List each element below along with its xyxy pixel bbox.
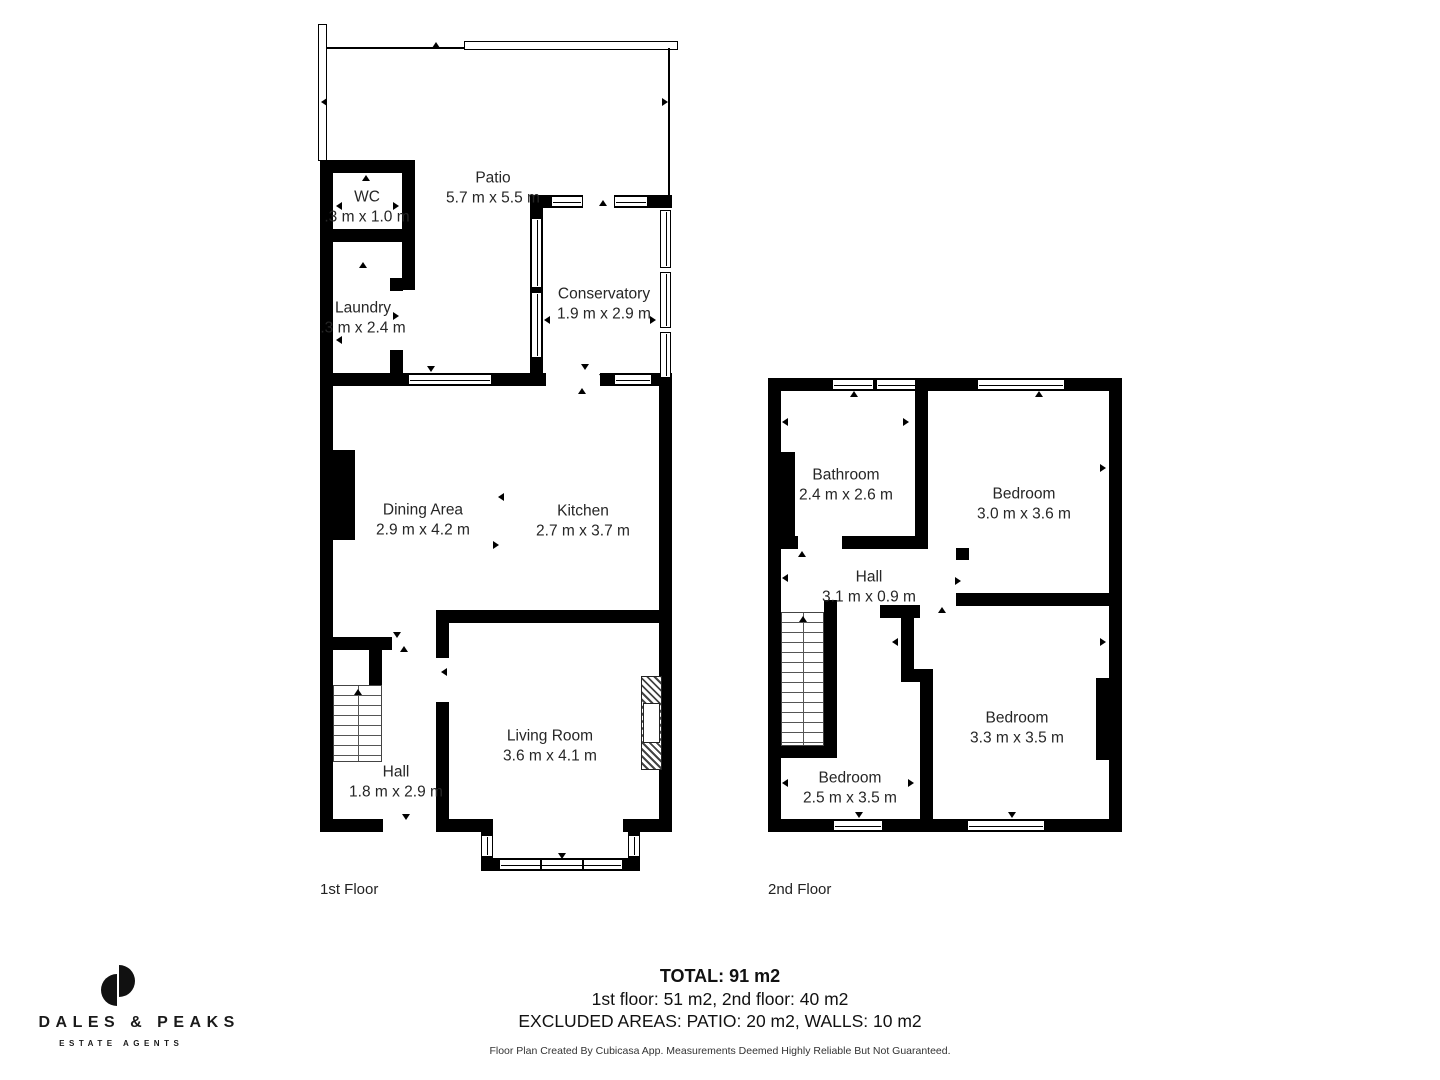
- wall: [768, 378, 1122, 391]
- direction-arrow: [1100, 464, 1106, 472]
- direction-arrow: [498, 493, 504, 501]
- wall: [824, 600, 837, 750]
- direction-arrow: [938, 607, 946, 613]
- room-name: Living Room: [503, 727, 597, 747]
- direction-arrow: [855, 812, 863, 818]
- stairs-center-line: [358, 686, 359, 761]
- room-name: Kitchen: [536, 502, 630, 522]
- wall: [915, 378, 928, 548]
- direction-arrow: [782, 574, 788, 582]
- wall: [768, 819, 1122, 832]
- wall: [369, 650, 382, 688]
- direction-arrow: [558, 853, 566, 859]
- room-name: Patio: [446, 169, 540, 189]
- room-name: Hall: [822, 568, 916, 588]
- direction-arrow: [798, 551, 806, 557]
- window-divider: [540, 859, 542, 870]
- direction-arrow: [659, 493, 665, 501]
- window: [614, 196, 648, 207]
- patio-boundary-line: [326, 47, 466, 49]
- direction-arrow: [782, 418, 788, 426]
- direction-arrow: [544, 316, 550, 324]
- room-dims: 5.7 m x 5.5 m: [446, 188, 540, 208]
- wall: [768, 378, 781, 832]
- stairs-second-floor: [781, 612, 824, 746]
- door-opening: [436, 658, 449, 702]
- room-dims: .3 m x 1.0 m: [324, 207, 409, 227]
- direction-arrow: [955, 577, 961, 585]
- room-dims: 1.8 m x 2.9 m: [349, 782, 443, 802]
- room-label-hall-first: Hall 1.8 m x 2.9 m: [349, 763, 443, 802]
- room-name: Bedroom: [803, 769, 897, 789]
- wall: [320, 160, 415, 173]
- room-label-laundry: Laundry .3 m x 2.4 m: [320, 299, 405, 338]
- window: [531, 292, 542, 358]
- direction-arrow: [1035, 391, 1043, 397]
- room-name: Bedroom: [977, 485, 1071, 505]
- direction-arrow: [892, 638, 898, 646]
- direction-arrow: [662, 98, 668, 106]
- wall: [956, 548, 969, 560]
- window: [481, 835, 493, 857]
- window: [832, 379, 874, 390]
- room-name: Bathroom: [799, 466, 893, 486]
- window: [499, 859, 623, 870]
- window: [833, 820, 883, 831]
- direction-arrow: [362, 234, 370, 240]
- direction-arrow: [578, 613, 586, 619]
- room-name: Hall: [349, 763, 443, 783]
- wall: [320, 637, 392, 650]
- logo-half-circle-right: [119, 965, 135, 997]
- stairs-up-arrow: [799, 616, 807, 622]
- direction-arrow: [493, 541, 499, 549]
- room-name: Conservatory: [557, 285, 651, 305]
- room-label-dining: Dining Area 2.9 m x 4.2 m: [376, 501, 470, 540]
- room-dims: 2.9 m x 4.2 m: [376, 520, 470, 540]
- direction-arrow: [359, 262, 367, 268]
- direction-arrow: [599, 200, 607, 206]
- wall: [436, 610, 672, 623]
- window: [531, 218, 542, 288]
- room-label-wc: WC .3 m x 1.0 m: [324, 188, 409, 227]
- agency-logo-icon: [33, 960, 205, 1012]
- room-label-patio: Patio 5.7 m x 5.5 m: [446, 169, 540, 208]
- room-label-bedroom-top: Bedroom 3.0 m x 3.6 m: [977, 485, 1071, 524]
- window: [408, 374, 492, 385]
- direction-arrow: [908, 779, 914, 787]
- wall: [390, 278, 403, 291]
- room-label-bedroom-left: Bedroom 2.5 m x 3.5 m: [803, 769, 897, 808]
- wall: [320, 819, 383, 832]
- direction-arrow: [1100, 638, 1106, 646]
- window-divider: [582, 859, 584, 870]
- floor-label-second: 2nd Floor: [768, 881, 831, 898]
- wall: [320, 160, 333, 832]
- direction-arrow: [393, 632, 401, 638]
- room-dims: 3.6 m x 4.1 m: [503, 746, 597, 766]
- agency-tagline: ESTATE AGENTS: [33, 1039, 205, 1048]
- summary-floor-areas: 1st floor: 51 m2, 2nd floor: 40 m2: [0, 989, 1440, 1010]
- direction-arrow: [599, 374, 607, 380]
- direction-arrow: [782, 779, 788, 787]
- direction-arrow: [321, 98, 327, 106]
- direction-arrow: [581, 364, 589, 370]
- room-dims: 3.1 m x 0.9 m: [822, 587, 916, 607]
- summary-disclaimer: Floor Plan Created By Cubicasa App. Meas…: [0, 1045, 1440, 1057]
- room-dims: 2.7 m x 3.7 m: [536, 521, 630, 541]
- room-dims: .3 m x 2.4 m: [320, 318, 405, 338]
- window: [660, 210, 671, 268]
- patio-boundary-line: [668, 48, 670, 196]
- agency-name: DALES & PEAKS: [33, 1014, 205, 1032]
- direction-arrow: [400, 646, 408, 652]
- direction-arrow: [1008, 812, 1016, 818]
- direction-arrow: [846, 541, 854, 547]
- direction-arrow: [402, 814, 410, 820]
- chimney-breast: [768, 452, 795, 548]
- direction-arrow: [362, 175, 370, 181]
- room-label-kitchen: Kitchen 2.7 m x 3.7 m: [536, 502, 630, 541]
- door-opening: [798, 536, 842, 549]
- wall: [880, 605, 920, 618]
- direction-arrow: [903, 418, 909, 426]
- chimney-breast: [1096, 678, 1122, 760]
- floor-plan-page: Patio 5.7 m x 5.5 m WC .3 m x 1.0 m Laun…: [0, 0, 1440, 1080]
- room-dims: 2.4 m x 2.6 m: [799, 485, 893, 505]
- door-opening: [546, 373, 600, 386]
- room-label-living: Living Room 3.6 m x 4.1 m: [503, 727, 597, 766]
- floor-label-first: 1st Floor: [320, 881, 378, 898]
- room-label-hall-second: Hall 3.1 m x 0.9 m: [822, 568, 916, 607]
- window: [967, 820, 1045, 831]
- room-name: Bedroom: [970, 709, 1064, 729]
- wall: [402, 229, 415, 290]
- logo-half-circle-left: [101, 974, 117, 1006]
- patio-fence: [464, 41, 678, 50]
- window: [660, 272, 671, 328]
- agency-logo: DALES & PEAKS ESTATE AGENTS: [33, 960, 205, 1048]
- direction-arrow: [432, 42, 440, 48]
- window: [977, 379, 1065, 390]
- room-dims: 3.0 m x 3.6 m: [977, 504, 1071, 524]
- room-name: Dining Area: [376, 501, 470, 521]
- fireplace-hearth: [643, 703, 660, 743]
- room-name: Laundry: [320, 299, 405, 319]
- patio-fence-post: [318, 24, 327, 161]
- window: [660, 332, 671, 378]
- room-dims: 2.5 m x 3.5 m: [803, 788, 897, 808]
- summary-total: TOTAL: 91 m2: [0, 966, 1440, 987]
- window: [876, 379, 917, 390]
- chimney-breast: [333, 450, 355, 540]
- stairs-first-floor: [333, 685, 382, 762]
- window: [614, 374, 652, 385]
- direction-arrow: [427, 366, 435, 372]
- direction-arrow: [441, 668, 447, 676]
- wall: [768, 745, 837, 758]
- room-dims: 1.9 m x 2.9 m: [557, 304, 651, 324]
- direction-arrow: [578, 388, 586, 394]
- stairs-center-line: [803, 613, 804, 745]
- room-label-conservatory: Conservatory 1.9 m x 2.9 m: [557, 285, 651, 324]
- stairs-up-arrow: [354, 689, 362, 695]
- direction-arrow: [850, 391, 858, 397]
- room-dims: 3.3 m x 3.5 m: [970, 728, 1064, 748]
- wall: [956, 593, 1122, 606]
- window: [551, 196, 583, 207]
- wall: [920, 669, 933, 832]
- room-label-bedroom-right: Bedroom 3.3 m x 3.5 m: [970, 709, 1064, 748]
- room-name: WC: [324, 188, 409, 208]
- window: [628, 835, 640, 857]
- room-label-bathroom: Bathroom 2.4 m x 2.6 m: [799, 466, 893, 505]
